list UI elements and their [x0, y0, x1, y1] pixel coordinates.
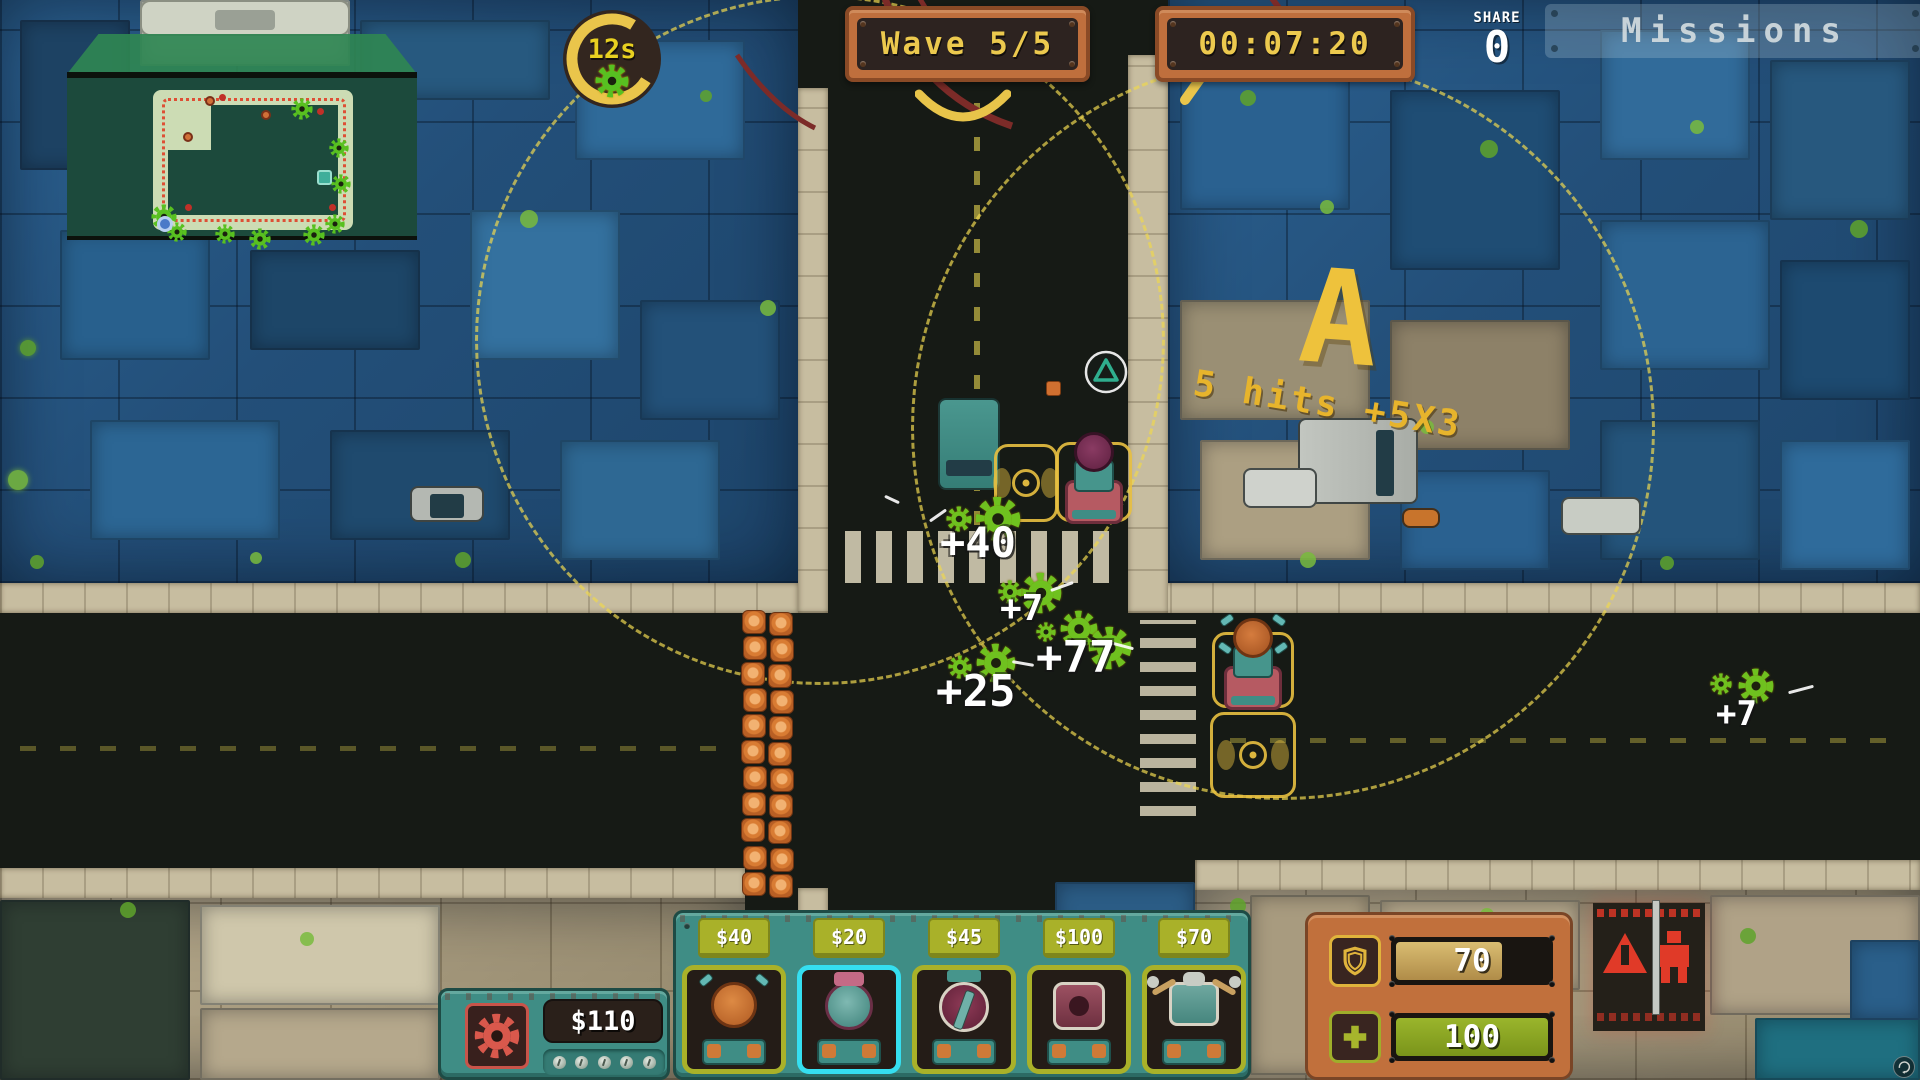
next-wave-timer: 12s	[557, 4, 667, 114]
vehicle-truck	[938, 398, 1000, 490]
shield-value: 70	[1391, 943, 1553, 979]
price-tag: $70	[1158, 918, 1230, 958]
share-count: 0	[1452, 26, 1542, 70]
next-wave-countdown: 12s	[557, 34, 667, 65]
missions-button[interactable]: Missions	[1545, 4, 1920, 58]
sidewalk	[1195, 860, 1920, 890]
tower-roadside[interactable]	[1218, 614, 1288, 710]
shop-card-1[interactable]: $40	[682, 918, 786, 1074]
share-counter: SHARE 0	[1452, 10, 1542, 70]
shop-card-5[interactable]: $70	[1142, 918, 1246, 1074]
enemy-gear	[1710, 673, 1732, 695]
bolt-icon	[575, 1056, 588, 1069]
combo-grade: A	[1296, 255, 1382, 380]
shop-card-3[interactable]: $45	[912, 918, 1016, 1074]
bolt-icon	[598, 1056, 611, 1069]
health-bar: 100	[1391, 1013, 1553, 1061]
sidewalk	[0, 868, 745, 898]
minimap[interactable]	[67, 34, 417, 240]
damage-number: +77	[1036, 632, 1115, 683]
tower-portrait	[1147, 970, 1241, 1069]
projector-machine	[140, 0, 350, 36]
health-value: 100	[1391, 1019, 1553, 1055]
spawn-marker	[1046, 381, 1061, 396]
spawn-arc-indicator	[915, 88, 1011, 134]
upgrade-slots	[543, 1049, 665, 1075]
gear-icon	[595, 64, 629, 102]
bolt-icon	[643, 1056, 656, 1069]
health-iconbox	[1329, 1011, 1381, 1063]
match-time: 00:07:20	[1198, 26, 1371, 62]
damage-number: +7	[1716, 694, 1757, 734]
base-status-panel: 70 100	[1305, 912, 1573, 1080]
overlay-cursor-icon	[1893, 1056, 1915, 1078]
tower-portrait	[1032, 970, 1126, 1069]
shop-card-2[interactable]: $20	[797, 918, 901, 1074]
minimap-beam	[67, 34, 417, 74]
vehicle-truck	[1561, 497, 1641, 535]
minimap-panel	[67, 72, 417, 240]
crosswalk	[1140, 620, 1196, 816]
minimap-tower-dot	[183, 132, 193, 142]
sidewalk	[1128, 583, 1920, 613]
price-tag: $40	[698, 918, 770, 958]
warning-billboard	[1593, 903, 1705, 1031]
tower-portrait	[802, 970, 896, 1069]
tower-portrait	[687, 970, 781, 1069]
sidewalk	[1128, 55, 1168, 613]
damage-number: +7	[1000, 588, 1043, 629]
shield-iconbox	[1329, 935, 1381, 987]
settings-gear-button[interactable]	[465, 1003, 529, 1069]
minimap-tower-dot	[261, 110, 271, 120]
vehicle-truck	[1243, 468, 1317, 508]
money-display: $110	[543, 999, 663, 1043]
game-screen: +40 +7 +77 +25 +7 A 5 hits +5X3	[0, 0, 1920, 1080]
shield-bar: 70	[1391, 937, 1553, 985]
health-plus-icon	[1340, 1022, 1370, 1052]
vehicle-car	[410, 486, 484, 522]
minimap-player-dot	[157, 216, 173, 232]
money-panel: $110	[438, 988, 670, 1080]
money-amount: $110	[570, 1006, 635, 1037]
sign-pole	[1652, 900, 1660, 1015]
damage-number: +40	[940, 518, 1016, 567]
warning-triangle-icon	[1603, 933, 1647, 973]
wave-banner: Wave 5/5	[845, 6, 1090, 82]
damage-number: +25	[936, 666, 1015, 717]
shop-card-4[interactable]: $100	[1027, 918, 1131, 1074]
vehicle-car	[1402, 508, 1440, 528]
price-tag: $100	[1043, 918, 1115, 958]
tower-portrait	[917, 970, 1011, 1069]
shield-icon	[1338, 944, 1372, 978]
bolt-icon	[553, 1056, 566, 1069]
price-tag: $20	[813, 918, 885, 958]
missions-label: Missions	[1621, 11, 1849, 51]
sidewalk	[0, 583, 798, 613]
match-time-banner: 00:07:20	[1155, 6, 1415, 82]
triangle-button-icon[interactable]	[1083, 349, 1129, 395]
tower-crosswalk[interactable]	[1062, 420, 1126, 524]
price-tag: $45	[928, 918, 1000, 958]
sidewalk	[798, 88, 828, 613]
minimap-goal	[317, 170, 332, 185]
minimap-tower-dot	[205, 96, 215, 106]
robot-icon	[1667, 931, 1681, 943]
bolt-icon	[620, 1056, 633, 1069]
wave-label: Wave 5/5	[881, 26, 1054, 62]
build-plot-empty[interactable]	[1210, 712, 1296, 798]
